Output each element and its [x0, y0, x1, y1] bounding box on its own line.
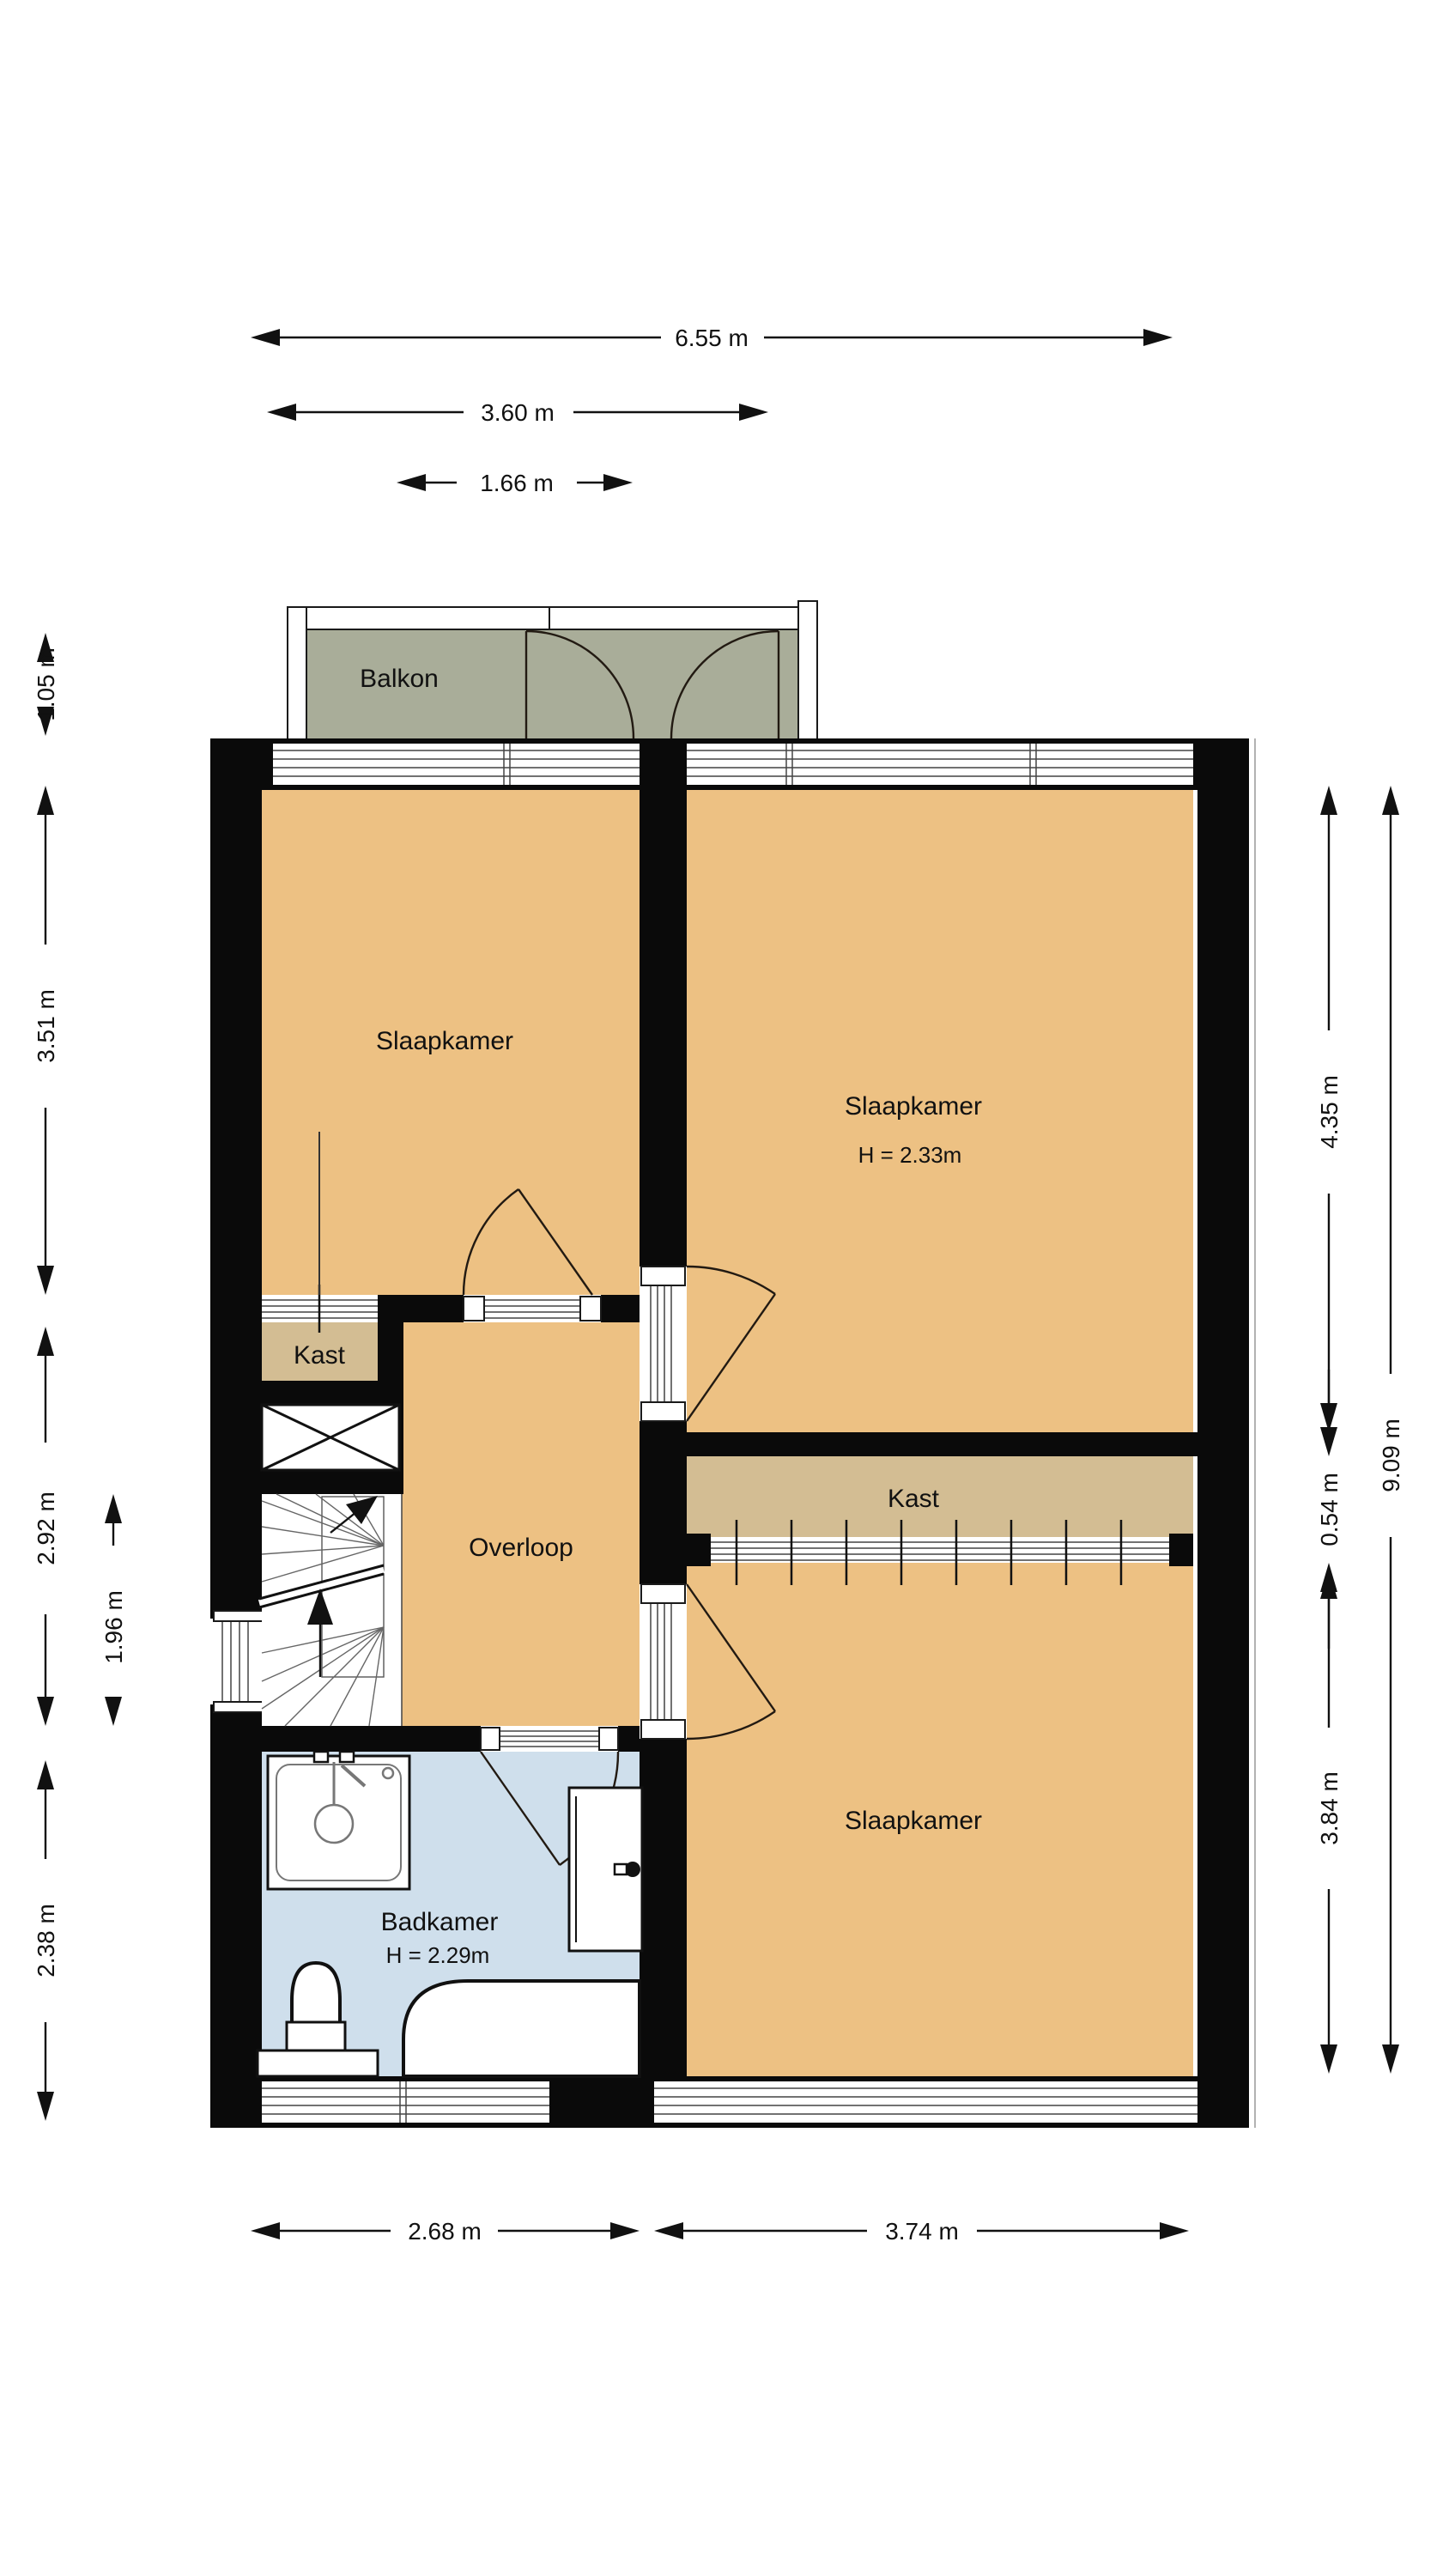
window-top-left [273, 744, 645, 785]
wall-center-upper [640, 738, 687, 1267]
dimension-bathroom-left: 2.38 m [33, 1760, 59, 2121]
wall-bathroom-top-b [618, 1726, 640, 1752]
svg-text:0.54 m: 0.54 m [1316, 1473, 1343, 1546]
svg-text:9.09 m: 9.09 m [1378, 1419, 1404, 1492]
label-bathroom-height: H = 2.29m [386, 1942, 490, 1968]
svg-text:2.68 m: 2.68 m [408, 2218, 482, 2245]
window-left-wall [214, 1611, 264, 1712]
balcony-railing-top [288, 607, 817, 629]
label-landing: Overloop [469, 1534, 573, 1562]
dimension-bottom-right: 3.74 m [654, 2218, 1189, 2245]
stairs [259, 1494, 402, 1726]
top-windows [273, 744, 1193, 785]
window-top-right [668, 744, 1193, 785]
boiler-cabinet [569, 1788, 642, 1951]
balcony-railing-left [288, 607, 306, 743]
wall-center-lower [640, 1739, 687, 2128]
svg-text:3.74 m: 3.74 m [885, 2218, 959, 2245]
wall-closet-left-bottom [262, 1381, 403, 1405]
svg-text:3.51 m: 3.51 m [33, 989, 59, 1063]
wall-bathroom-top-a [262, 1726, 481, 1752]
bathtub [403, 1981, 640, 2076]
shower [268, 1752, 409, 1889]
label-bedroom-top-right-height: H = 2.33m [858, 1142, 962, 1168]
svg-text:1.96 m: 1.96 m [100, 1590, 127, 1664]
svg-text:2.38 m: 2.38 m [33, 1904, 59, 1978]
label-bedroom-top-right: Slaapkamer [845, 1092, 982, 1121]
svg-text:2.92 m: 2.92 m [33, 1492, 59, 1565]
dimension-balcony-window: 1.66 m [397, 470, 633, 496]
label-bedroom-top-left: Slaapkamer [376, 1027, 513, 1055]
dimension-landing-left: 2.92 m [33, 1327, 59, 1726]
shaft-box [262, 1405, 399, 1470]
svg-text:1.66 m: 1.66 m [480, 470, 554, 496]
wall-closet-right-divider [640, 1432, 1197, 1456]
room-closet-right [687, 1456, 1193, 1537]
floor-plan-svg: Balkon Slaapkamer Slaapkamer H = 2.33m K… [0, 0, 1449, 2576]
label-closet-right: Kast [888, 1485, 940, 1513]
dimension-bedroom-right-top: 4.35 m [1316, 786, 1343, 1432]
window-bottom-right [654, 2081, 1197, 2123]
svg-text:3.60 m: 3.60 m [481, 399, 555, 426]
dimension-total-height: 9.09 m [1378, 786, 1404, 2074]
toilet-base [258, 2050, 378, 2076]
dimension-stairs: 1.96 m [100, 1494, 127, 1726]
wall-bedroom1-bottom-a [378, 1295, 464, 1322]
dimension-top-total: 6.55 m [251, 325, 1173, 351]
dimension-bottom-left: 2.68 m [251, 2218, 640, 2245]
balcony-railing-right [798, 601, 817, 743]
dimension-balcony-width: 3.60 m [267, 399, 768, 426]
room-landing [402, 1322, 640, 1726]
dimension-balcony-depth: 1.05 m [33, 633, 59, 736]
label-balcony: Balkon [360, 665, 439, 693]
label-closet-left: Kast [294, 1341, 346, 1370]
wall-shaft-bottom [262, 1470, 403, 1494]
wall-right [1197, 738, 1249, 2128]
svg-text:3.84 m: 3.84 m [1316, 1771, 1343, 1845]
wall-bedroom1-bottom-b [601, 1295, 640, 1322]
dimension-bedroom-left: 3.51 m [33, 786, 59, 1295]
dimension-bedroom-right-bottom: 3.84 m [1316, 1570, 1343, 2074]
label-bathroom: Badkamer [381, 1908, 499, 1936]
label-bedroom-bottom: Slaapkamer [845, 1807, 982, 1835]
svg-text:6.55 m: 6.55 m [675, 325, 749, 351]
svg-text:1.05 m: 1.05 m [33, 647, 59, 721]
wall-left-lower [210, 1704, 262, 2128]
bottom-windows [262, 2081, 1197, 2123]
svg-text:4.35 m: 4.35 m [1316, 1075, 1343, 1149]
wall-left-upper [210, 738, 262, 1619]
floor-plan-page: Balkon Slaapkamer Slaapkamer H = 2.33m K… [0, 0, 1449, 2576]
